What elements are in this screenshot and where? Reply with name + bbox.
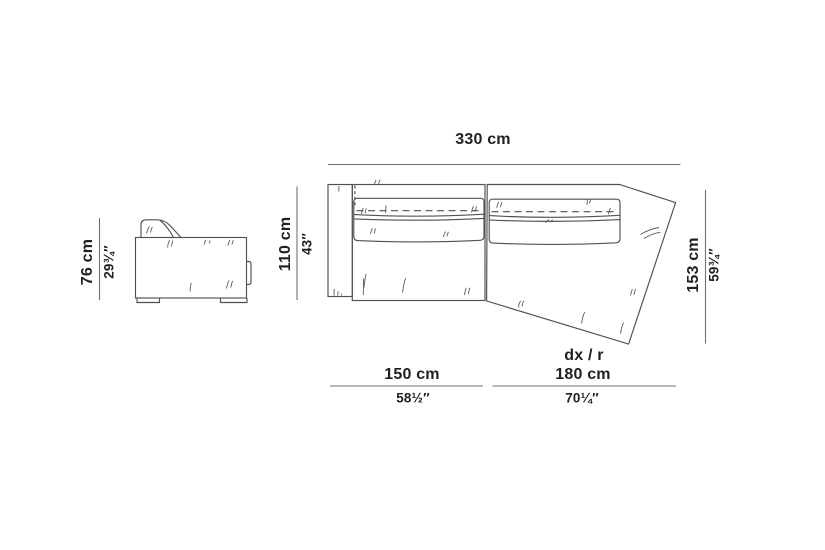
plan-left-module xyxy=(328,180,485,301)
left-module-cm-label: 150 cm xyxy=(384,367,439,383)
sofa-side-body xyxy=(136,238,247,299)
chaise-depth-inch-label: 59¾″ xyxy=(707,248,721,282)
plan-left-cushion-seam-2 xyxy=(354,218,484,220)
sofa-side-armrest-tab xyxy=(247,262,252,285)
sofa-side-foot-left xyxy=(137,298,160,303)
plan-right-body xyxy=(487,185,676,345)
plan-left-body xyxy=(352,185,485,301)
plan-right-cushion-seam-2 xyxy=(489,220,620,222)
plan-right-module xyxy=(487,185,676,345)
side-height-cm-label: 76 cm xyxy=(80,239,96,285)
sofa-side-back-cushion xyxy=(141,220,181,238)
seat-depth-inch-label: 43″ xyxy=(300,232,314,254)
left-module-inch-label: 58½″ xyxy=(396,391,430,405)
side-height-inch-label: 29¾″ xyxy=(102,245,116,279)
sofa-side-wrinkle-marks xyxy=(147,227,234,292)
overall-width-cm-label: 330 cm xyxy=(455,132,510,148)
sofa-dimension-diagram: 76 cm 29¾″ 330 cm 110 cm 43″ 153 cm 59¾″… xyxy=(0,0,825,550)
right-module-cm-label: 180 cm xyxy=(555,367,610,383)
plan-left-cushion-seam-1 xyxy=(354,214,484,216)
sofa-side-view xyxy=(136,220,252,303)
chaise-depth-cm-label: 153 cm xyxy=(686,237,702,292)
plan-left-armrest xyxy=(328,185,352,297)
right-module-inch-label: 70¼″ xyxy=(565,391,599,405)
plan-right-cushion-seam-1 xyxy=(489,215,620,217)
plan-right-wrinkle-marks xyxy=(497,199,661,334)
seat-depth-cm-label: 110 cm xyxy=(278,216,294,271)
sofa-side-foot-right xyxy=(221,298,248,303)
right-module-variant-label: dx / r xyxy=(564,348,603,364)
